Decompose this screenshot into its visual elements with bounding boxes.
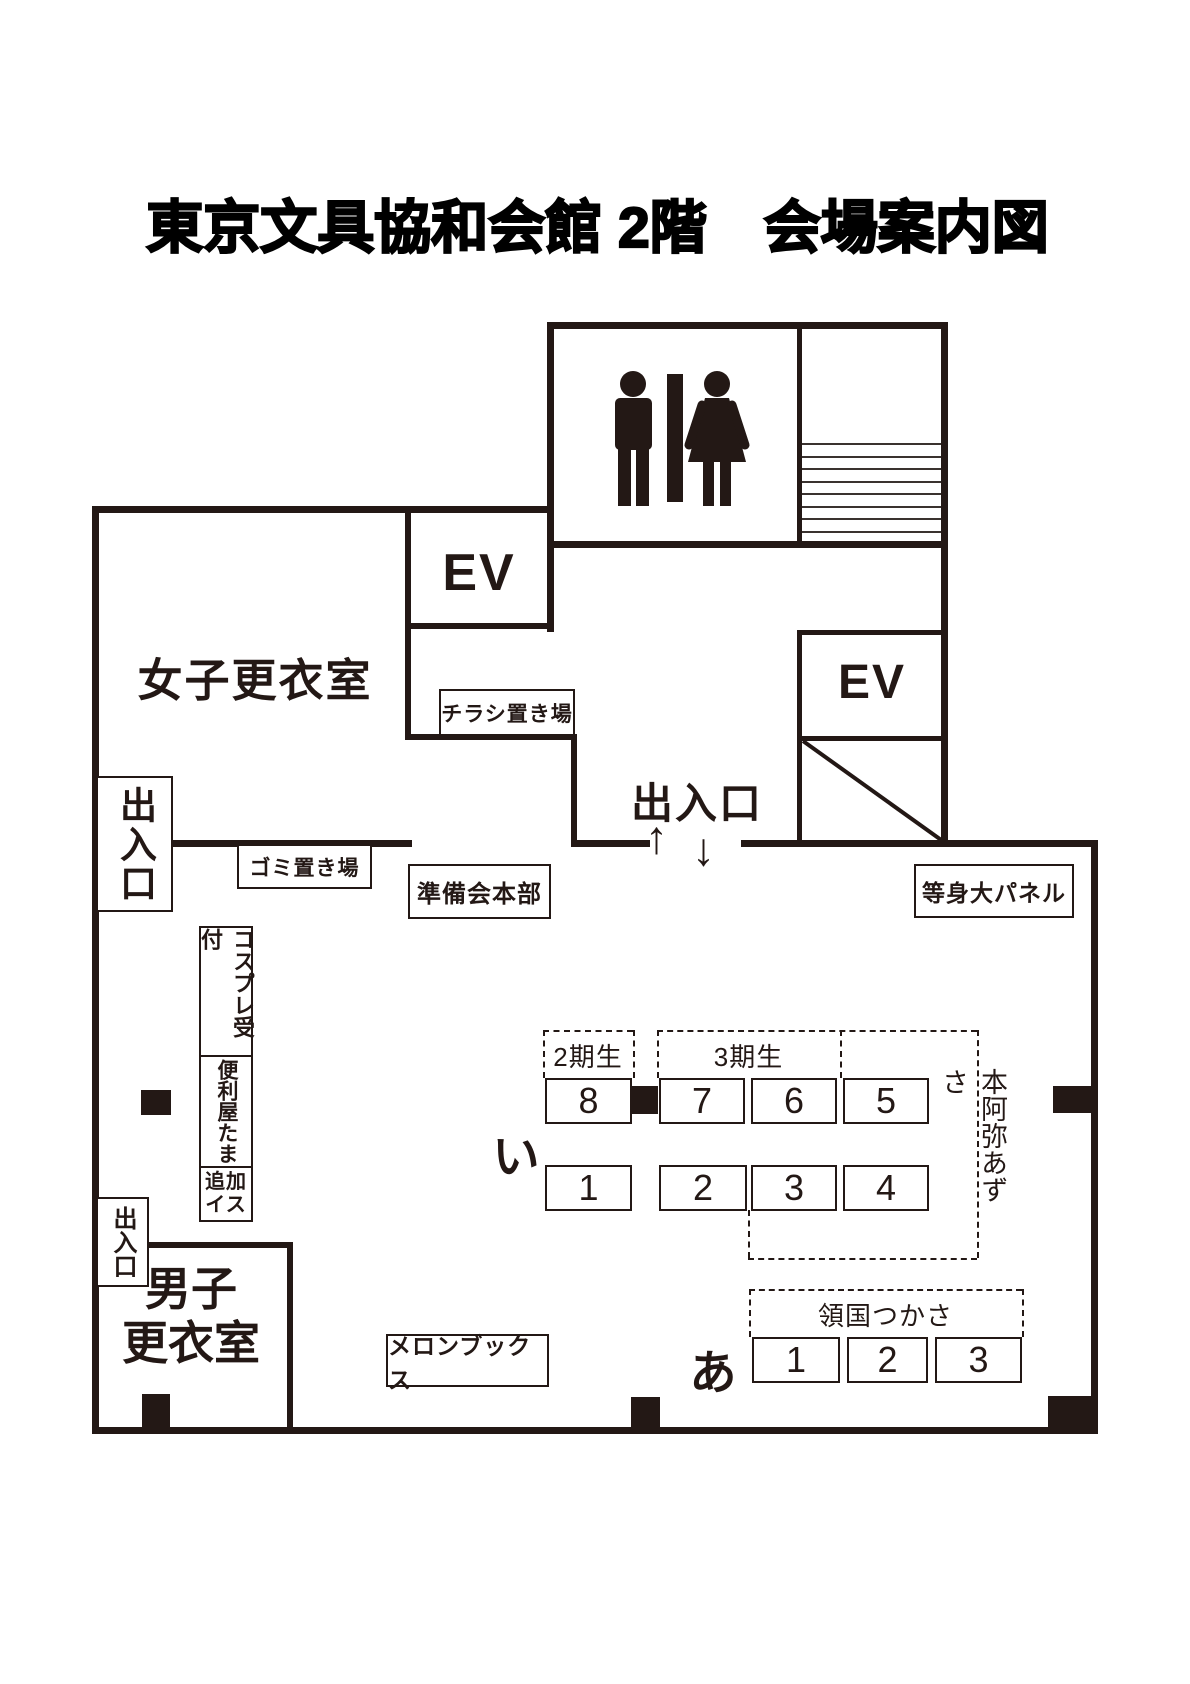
wall [147,1242,293,1248]
pillar [631,1397,660,1430]
male-icon [615,371,652,506]
stair-step [802,493,941,495]
diagonal-line [797,736,948,847]
melonbooks-label: メロンブックス [386,1334,549,1387]
booth-table: 7 [659,1078,745,1124]
main-entrance-label: 出入口 [617,770,777,831]
dashed-line [748,1258,977,1260]
booth-table: 5 [843,1078,929,1124]
dashed-line [543,1030,633,1032]
group-gen2-label: 2期生 [543,1037,633,1074]
stair-step [802,506,941,508]
flyer-area-label: チラシ置き場 [439,689,575,736]
wall [1091,840,1098,1434]
restroom-divider [667,374,683,502]
honami-azusa-label: 本阿弥あずさ [934,1068,1012,1220]
pillar [1048,1396,1095,1430]
booth-table: 8 [545,1078,632,1124]
wall [797,322,802,548]
dashed-line [1022,1289,1024,1337]
elevator-label: EV [405,543,553,603]
booth-table: 2 [847,1337,928,1383]
female-icon [688,371,746,506]
wall [547,541,948,548]
dashed-line [657,1030,977,1032]
extra-chairs-label: 追加 イス [199,1166,253,1222]
wall [405,623,553,629]
restroom-icon [590,360,765,515]
extra-chairs-line1: 追加 [205,1171,247,1194]
wall [287,1242,293,1434]
dashed-line [840,1030,842,1078]
booth-table: 6 [751,1078,837,1124]
booth-table: 3 [935,1337,1022,1383]
extra-chairs-line2: イス [205,1194,246,1217]
benriya-tama-label: 便利屋たま [199,1055,253,1168]
wall [92,506,554,513]
arrow-up-icon: ↑ [645,814,668,860]
ryogoku-tsukasa-label: 領国つかさ [749,1296,1022,1333]
booth-table: 2 [659,1165,747,1211]
row-i-label: い [486,1118,546,1187]
stair-step [802,531,941,533]
pillar [1053,1086,1095,1113]
wall [797,630,947,635]
stair-step [802,443,941,445]
mens-label-line2: 更衣室 [100,1316,282,1370]
pillar [632,1086,658,1114]
pillar [142,1394,170,1430]
left-lower-entrance-label: 出入口 [96,1197,149,1287]
staff-hq-label: 準備会本部 [408,864,551,919]
page-title: 東京文具協和会館 2階 会場案内図 [60,182,1135,264]
left-upper-entrance-label: 出入口 [96,776,173,912]
dashed-line [749,1289,1022,1291]
stair-step [802,481,941,483]
wall [92,506,99,1434]
pillar [141,1090,171,1115]
stair-step [802,518,941,520]
dashed-line [633,1030,635,1078]
womens-changing-room-label: 女子更衣室 [110,644,400,709]
wall [571,734,577,847]
life-size-panel-label: 等身大パネル [914,864,1074,918]
booth-table: 4 [843,1165,929,1211]
elevator-label: EV [797,655,947,710]
dashed-line [748,1210,750,1258]
booth-table: 1 [752,1337,840,1383]
cosplay-reception-label: コスプレ受付 [199,926,253,1057]
garbage-area-label: ゴミ置き場 [237,844,372,889]
stair-step [802,456,941,458]
wall [571,840,650,847]
floor-plan: 東京文具協和会館 2階 会場案内図 [0,0,1190,1684]
row-a-label: あ [683,1334,743,1403]
group-gen3-label: 3期生 [657,1037,840,1074]
arrow-down-icon: ↓ [692,826,715,872]
booth-table: 3 [751,1165,837,1211]
stair-step [802,468,941,470]
wall [547,322,948,329]
wall [92,1427,1098,1434]
booth-table: 1 [545,1165,632,1211]
